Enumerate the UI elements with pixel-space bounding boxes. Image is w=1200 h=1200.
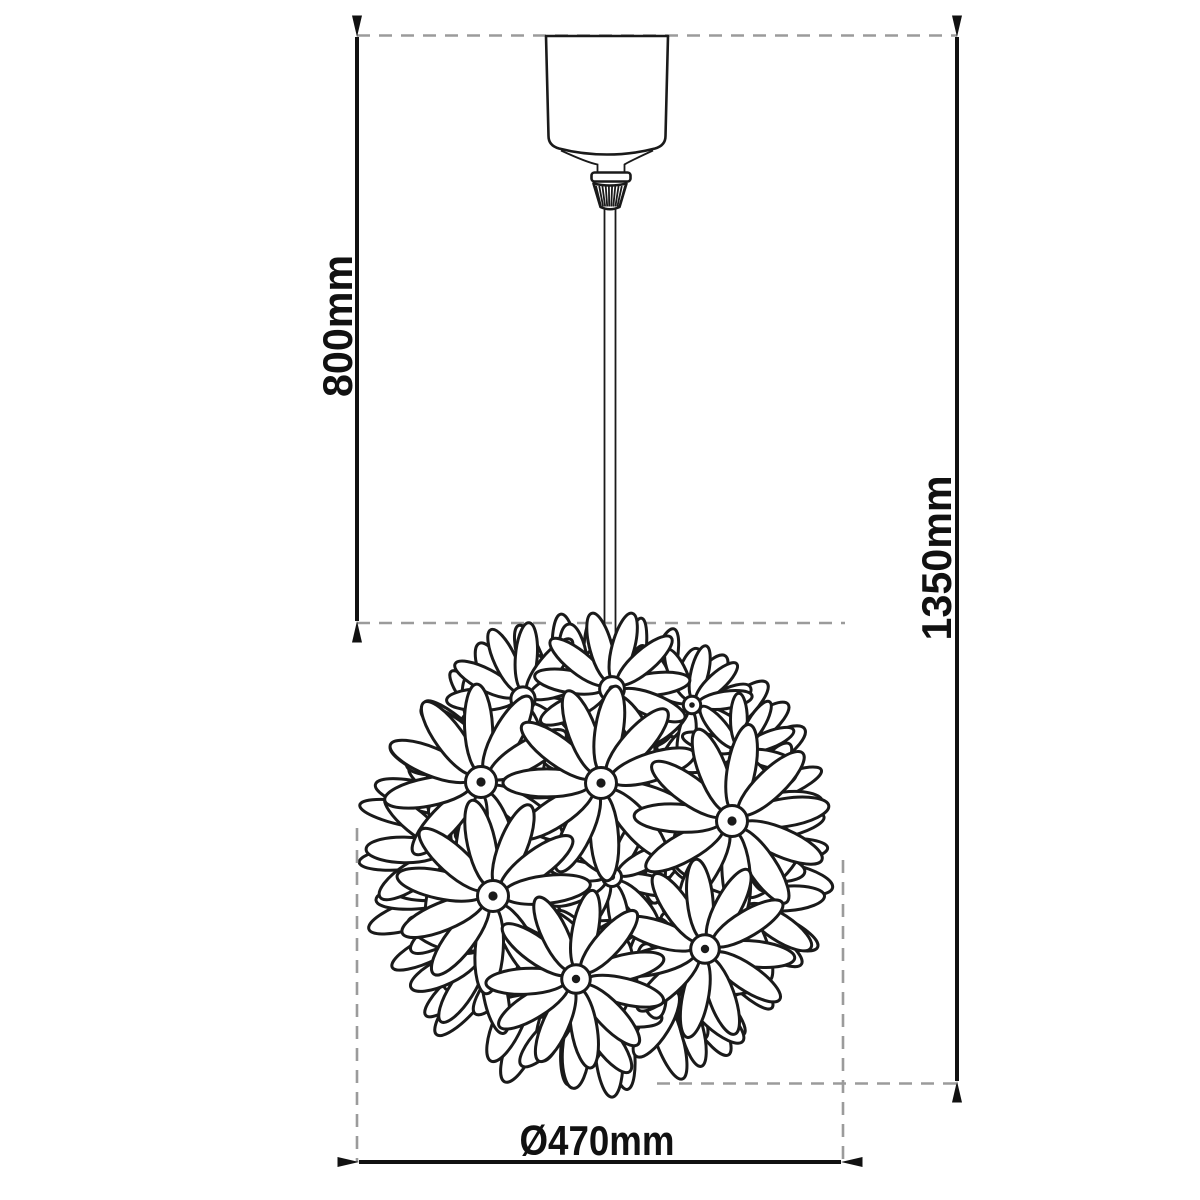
suspension-cord	[605, 209, 616, 652]
canopy-collar-ring	[592, 173, 631, 182]
cable-drop-label: 800mm	[314, 255, 361, 397]
flower-ball-shade	[358, 610, 836, 1098]
diameter-label: Ø470mm	[520, 1117, 675, 1164]
canopy-body	[546, 36, 668, 155]
pendant-lamp-dimension-drawing: 800mm 1350mm Ø470mm	[0, 0, 1200, 1200]
ceiling-canopy	[546, 36, 668, 209]
total-height-label: 1350mm	[913, 476, 960, 641]
diagram-canvas: 800mm 1350mm Ø470mm	[0, 0, 1200, 1200]
